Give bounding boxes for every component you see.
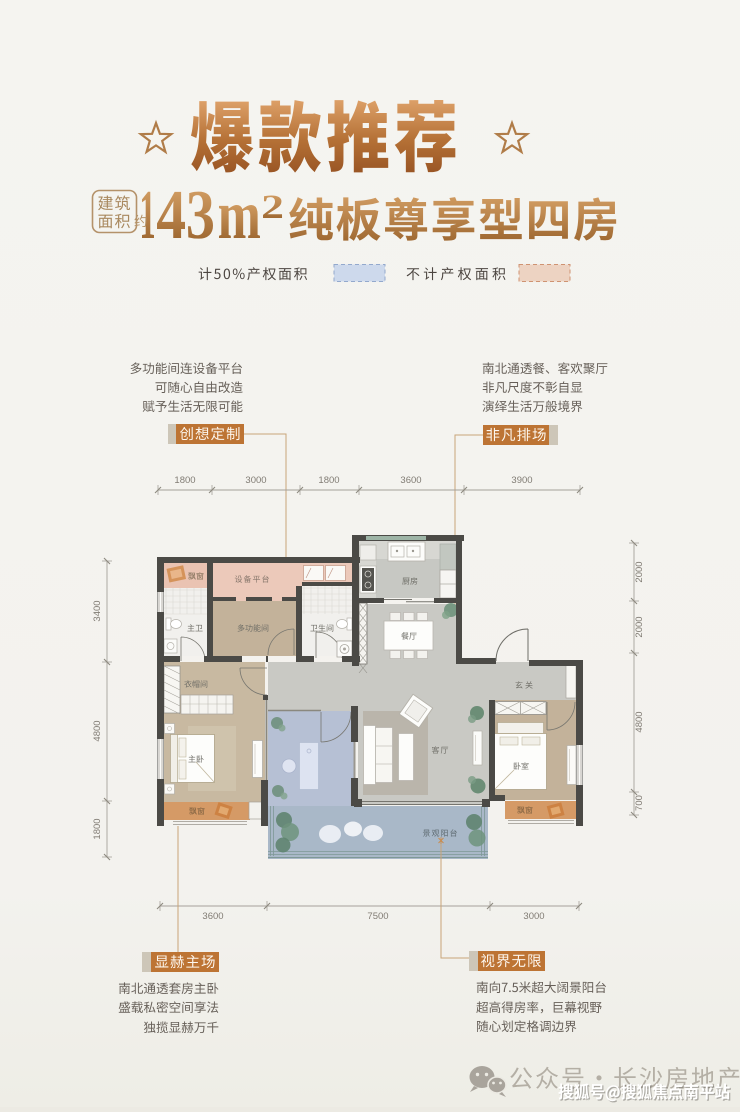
svg-text:1800: 1800 (318, 475, 339, 486)
svg-text:3900: 3900 (511, 475, 532, 486)
svg-text:3000: 3000 (523, 911, 544, 922)
svg-text:4800: 4800 (634, 711, 645, 732)
svg-text:3600: 3600 (400, 475, 421, 486)
svg-text:1800: 1800 (174, 475, 195, 486)
svg-text:2000: 2000 (634, 616, 645, 637)
svg-text:2000: 2000 (634, 561, 645, 582)
svg-text:3600: 3600 (202, 911, 223, 922)
svg-text:3000: 3000 (245, 475, 266, 486)
svg-text:700: 700 (634, 795, 645, 811)
svg-text:4800: 4800 (92, 720, 103, 741)
svg-text:1800: 1800 (92, 818, 103, 839)
svg-text:7500: 7500 (367, 911, 388, 922)
svg-text:3400: 3400 (92, 600, 103, 621)
